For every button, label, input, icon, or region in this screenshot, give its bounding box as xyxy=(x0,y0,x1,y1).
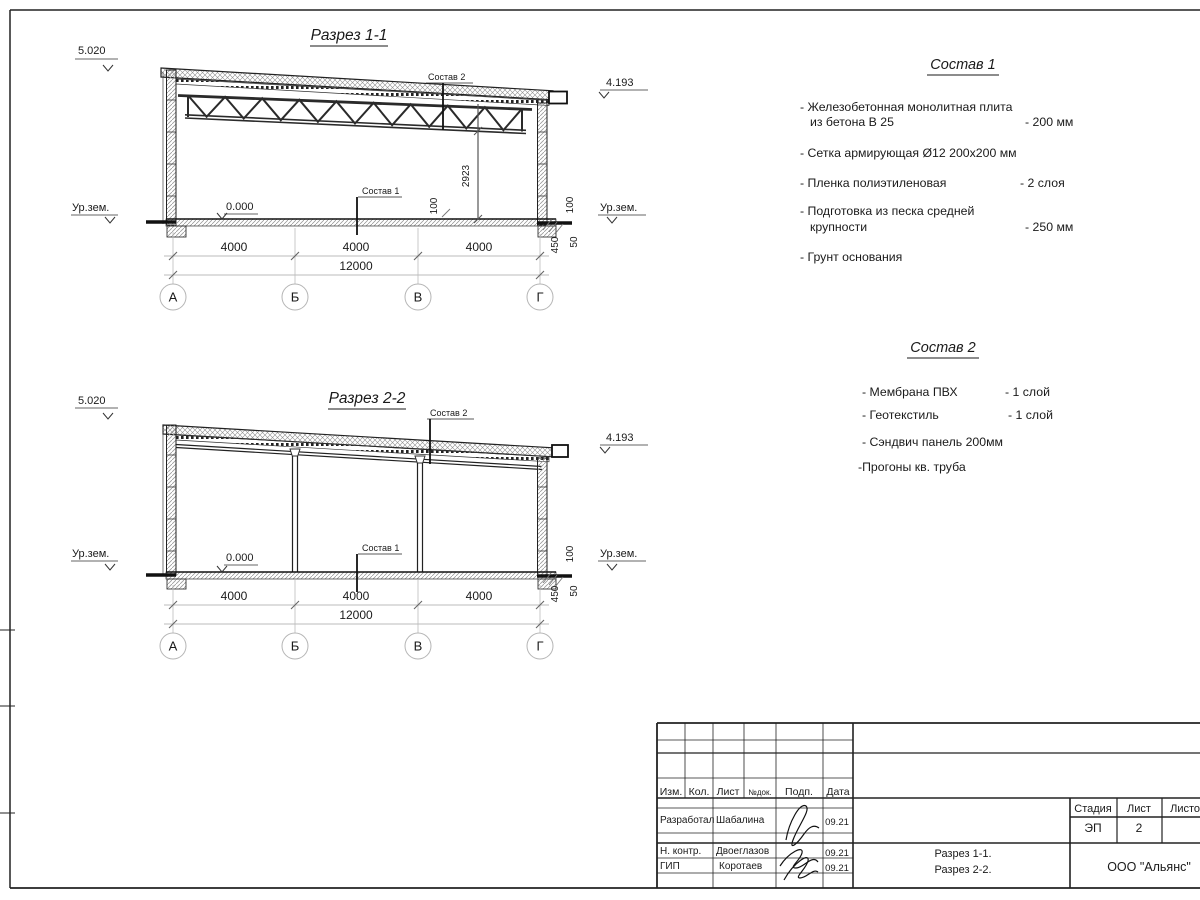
column-V xyxy=(415,456,425,572)
wall-left-2 xyxy=(167,425,177,575)
tb-date: 09.21 xyxy=(825,863,849,874)
composition-1-item: - Подготовка из песка средней xyxy=(800,204,974,218)
ground-left-2: Ур.зем. xyxy=(71,548,118,570)
composition-1-title: Состав 1 xyxy=(930,57,995,73)
ground-right-2: Ур.зем. xyxy=(598,548,646,570)
composition-2-value: - 1 слой xyxy=(1005,385,1050,399)
tb-header-podp: Подп. xyxy=(785,786,813,798)
leader-sostav1-2: Состав 1 xyxy=(357,543,402,592)
roof-end-box-2 xyxy=(552,445,568,457)
tb-name: Шабалина xyxy=(716,814,765,826)
svg-text:Ур.зем.: Ур.зем. xyxy=(600,548,637,560)
tb-header-kol: Кол. xyxy=(689,786,710,798)
svg-text:Ур.зем.: Ур.зем. xyxy=(72,202,109,214)
composition-2-item: - Сэндвич панель 200мм xyxy=(862,435,1003,449)
svg-text:450: 450 xyxy=(550,585,561,602)
tb-doc-title-1: Разрез 1-1. xyxy=(934,848,991,860)
tb-doc-title-2: Разрез 2-2. xyxy=(934,864,991,876)
composition-1-item: крупности xyxy=(810,220,867,234)
composition-1-item: из бетона В 25 xyxy=(810,115,894,129)
svg-text:100: 100 xyxy=(565,196,576,213)
composition-1-value: - 250 мм xyxy=(1025,220,1073,234)
svg-text:В: В xyxy=(414,639,423,654)
svg-text:4.193: 4.193 xyxy=(606,77,634,89)
leader-sostav1-1: Состав 1 xyxy=(357,186,402,235)
svg-text:100: 100 xyxy=(429,197,440,214)
tb-sheet-label: Лист xyxy=(1127,803,1151,815)
svg-text:Состав 1: Состав 1 xyxy=(362,186,399,196)
svg-text:50: 50 xyxy=(569,236,580,248)
svg-text:12000: 12000 xyxy=(339,608,373,622)
svg-text:0.000: 0.000 xyxy=(226,201,254,213)
tb-header-izm: Изм. xyxy=(660,786,683,798)
svg-text:Г: Г xyxy=(536,639,543,654)
svg-text:4.193: 4.193 xyxy=(606,432,634,444)
composition-2-item: - Мембрана ПВХ xyxy=(862,385,958,399)
tb-header-data: Дата xyxy=(826,786,849,798)
svg-text:Б: Б xyxy=(291,290,300,305)
composition-1-item: - Грунт основания xyxy=(800,250,902,264)
floor-slab-1 xyxy=(166,219,556,226)
composition-2-value: - 1 слой xyxy=(1008,408,1053,422)
roof-end-box-1 xyxy=(549,92,567,104)
tb-sheet-value: 2 xyxy=(1136,821,1143,835)
axis-bubbles-2: А Б В Г xyxy=(160,633,553,659)
svg-text:4000: 4000 xyxy=(343,589,370,603)
drawing-sheet: Разрез 1-1 xyxy=(0,0,1200,900)
tb-company: ООО "Альянс" xyxy=(1107,860,1191,874)
composition-1-item: - Железобетонная монолитная плита xyxy=(800,100,1013,114)
section-2-title: Разрез 2-2 xyxy=(329,390,406,407)
tb-sheets-label: Листов xyxy=(1170,803,1200,815)
svg-text:В: В xyxy=(414,290,423,305)
elev-5020-1: 5.020 xyxy=(75,45,118,71)
elev-4193-1: 4.193 xyxy=(599,77,648,98)
svg-text:Ур.зем.: Ур.зем. xyxy=(72,548,109,560)
tb-date: 09.21 xyxy=(825,817,849,828)
column-B xyxy=(290,449,300,572)
elev-zero-2: 0.000 xyxy=(217,552,258,572)
wall-left-1 xyxy=(167,70,177,225)
elev-zero-1: 0.000 xyxy=(217,201,258,219)
tb-header-list: Лист xyxy=(717,786,740,798)
foundation-left-2 xyxy=(167,579,186,589)
composition-1-value: - 2 слоя xyxy=(1020,176,1065,190)
elev-4193-2: 4.193 xyxy=(600,432,648,453)
svg-text:50: 50 xyxy=(569,585,580,597)
tb-stage-label: Стадия xyxy=(1074,803,1112,815)
tb-role: Разработал xyxy=(660,814,715,826)
axis-bubbles-1: А Б В Г xyxy=(160,284,553,310)
composition-2: Состав 2 - Мембрана ПВХ - 1 слой - Геоте… xyxy=(858,340,1053,474)
svg-text:5.020: 5.020 xyxy=(78,395,106,407)
wall-right-2 xyxy=(538,458,548,575)
svg-text:Состав 2: Состав 2 xyxy=(430,408,467,418)
composition-2-item: -Прогоны кв. труба xyxy=(858,460,966,474)
tb-date: 09.21 xyxy=(825,848,849,859)
svg-text:12000: 12000 xyxy=(339,259,373,273)
svg-text:4000: 4000 xyxy=(466,240,493,254)
section-1-title: Разрез 1-1 xyxy=(311,27,388,44)
ground-right-1: Ур.зем. xyxy=(598,202,646,223)
tb-name: Двоеглазов xyxy=(716,846,769,857)
title-block: Изм. Кол. Лист №док. Подп. Дата Разработ… xyxy=(657,723,1200,888)
svg-text:А: А xyxy=(169,639,178,654)
sheet-frame xyxy=(0,10,1200,888)
svg-text:4000: 4000 xyxy=(221,240,248,254)
tb-role: ГИП xyxy=(660,861,680,872)
tb-header-ndok: №док. xyxy=(748,788,771,797)
drawing-canvas: Разрез 1-1 xyxy=(0,0,1200,900)
composition-2-item: - Геотекстиль xyxy=(862,408,939,422)
svg-text:4000: 4000 xyxy=(343,240,370,254)
dims-1: 4000 4000 4000 12000 xyxy=(164,228,549,284)
svg-text:Состав 1: Состав 1 xyxy=(362,543,399,553)
tb-name: Коротаев xyxy=(719,861,762,872)
svg-text:Состав 2: Состав 2 xyxy=(428,72,465,82)
section-1-1: Разрез 1-1 xyxy=(71,27,648,310)
foundation-left-1 xyxy=(167,226,186,237)
svg-text:2923: 2923 xyxy=(461,164,472,187)
svg-text:5.020: 5.020 xyxy=(78,45,106,57)
tb-stage-value: ЭП xyxy=(1084,821,1101,835)
elev-5020-2: 5.020 xyxy=(75,395,118,419)
composition-1: Состав 1 - Железобетонная монолитная пли… xyxy=(800,57,1073,264)
section-2-2: Разрез 2-2 xyxy=(71,390,648,659)
tb-role: Н. контр. xyxy=(660,846,701,857)
svg-text:А: А xyxy=(169,290,178,305)
composition-2-title: Состав 2 xyxy=(910,340,975,356)
svg-text:450: 450 xyxy=(550,236,561,253)
floor-slab-2 xyxy=(166,572,556,579)
composition-1-item: - Пленка полиэтиленовая xyxy=(800,176,946,190)
svg-text:4000: 4000 xyxy=(466,589,493,603)
svg-text:Г: Г xyxy=(536,290,543,305)
foundation-right-1 xyxy=(538,226,556,237)
svg-text:Б: Б xyxy=(291,639,300,654)
ground-left-1: Ур.зем. xyxy=(71,202,118,223)
svg-text:4000: 4000 xyxy=(221,589,248,603)
svg-text:Ур.зем.: Ур.зем. xyxy=(600,202,637,214)
svg-text:0.000: 0.000 xyxy=(226,552,254,564)
svg-text:100: 100 xyxy=(565,545,576,562)
composition-1-value: - 200 мм xyxy=(1025,115,1073,129)
composition-1-item: - Сетка армирующая Ø12 200х200 мм xyxy=(800,146,1017,160)
